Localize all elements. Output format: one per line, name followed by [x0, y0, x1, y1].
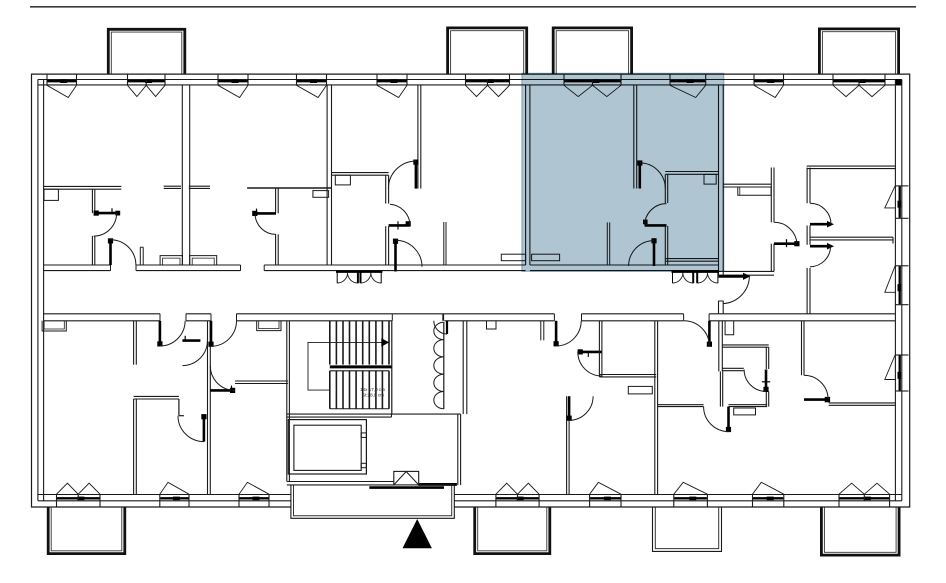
svg-text:18x 17,0 cm: 18x 17,0 cm	[360, 387, 385, 392]
svg-text:St:28,0 cm: St:28,0 cm	[362, 393, 384, 398]
